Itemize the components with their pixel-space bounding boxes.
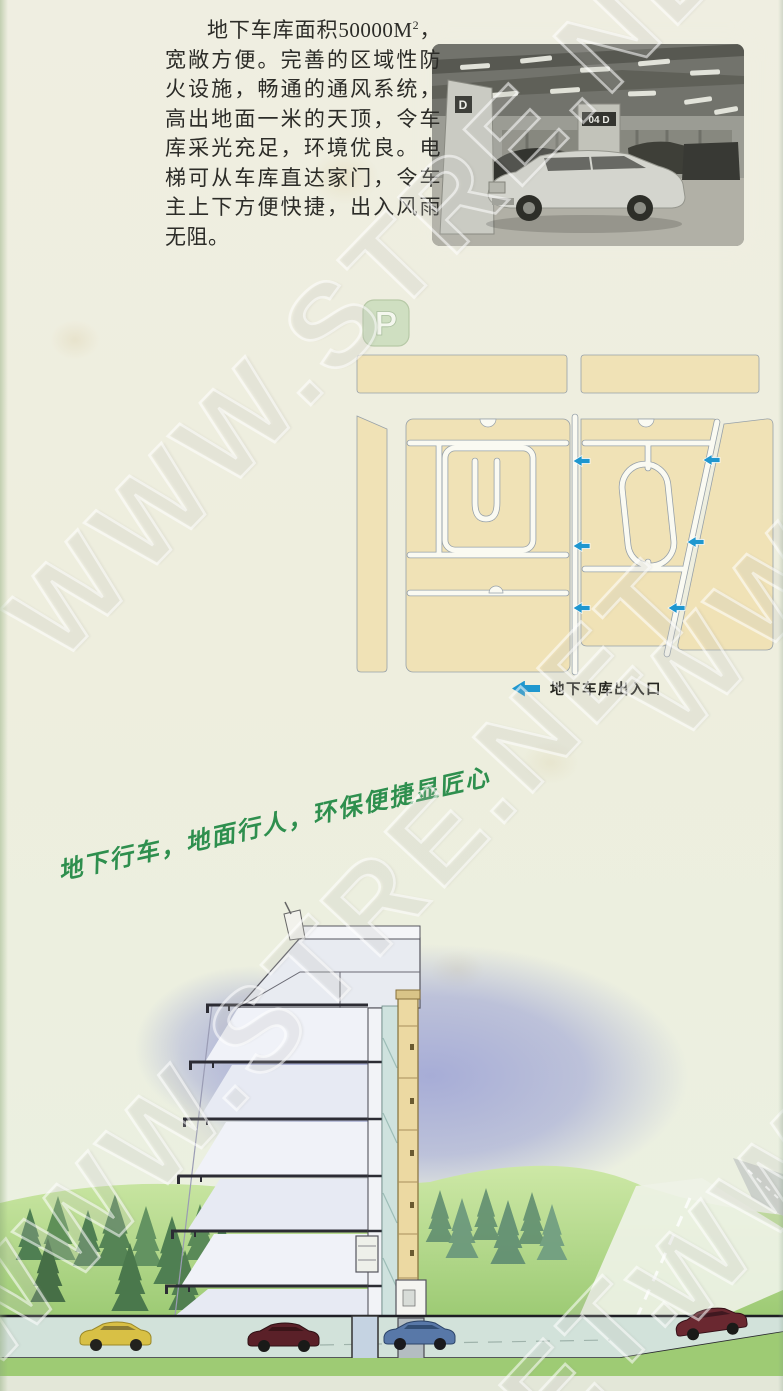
paper-stain	[50, 320, 100, 360]
map-block-top-left	[357, 355, 567, 393]
legend-arrow-icon	[512, 681, 540, 697]
elevator-shaft	[398, 998, 418, 1316]
map-legend: 地下车库出入口	[512, 678, 662, 699]
brochure-page: 地下车库面积50000M2，宽敞方便。完善的区域性防火设施，畅通的通风系统，高出…	[0, 0, 783, 1391]
map-block-left-bar	[357, 416, 387, 672]
page-edge-right	[778, 0, 783, 1391]
photo-tint	[432, 44, 744, 246]
lobby-door	[403, 1290, 415, 1306]
bottom-margin	[0, 1376, 783, 1391]
intro-paragraph: 地下车库面积50000M2，宽敞方便。完善的区域性防火设施，畅通的通风系统，高出…	[165, 16, 441, 252]
garage-photo: D 04 D	[432, 44, 744, 246]
site-map: P	[353, 298, 777, 702]
slogan-calligraphy: 地下行车，地面行人，环保便捷显匠心	[54, 757, 493, 887]
intro-text-rest: ，宽敞方便。完善的区域性防火设施，畅通的通风系统，高出地面一米的天顶，令车库采光…	[165, 18, 441, 249]
elevator-shaft-cap	[396, 990, 420, 999]
map-block-top-right	[581, 355, 759, 393]
roof-cap	[290, 926, 420, 939]
page-edge-left	[0, 0, 8, 1391]
intro-text-start: 地下车库面积50000M	[207, 18, 413, 42]
parking-badge-letter: P	[375, 305, 398, 343]
legend-label: 地下车库出入口	[550, 678, 662, 699]
paper-stain	[520, 740, 580, 785]
garage-photo-art: D 04 D	[432, 44, 744, 246]
building-section-illustration	[0, 898, 783, 1391]
roof-vent	[284, 910, 305, 940]
roof-antenna	[285, 902, 291, 914]
parking-badge: P	[363, 300, 409, 346]
elevator-cab	[356, 1236, 378, 1272]
map-blocks	[357, 355, 773, 672]
map-block-west-group	[406, 419, 570, 672]
